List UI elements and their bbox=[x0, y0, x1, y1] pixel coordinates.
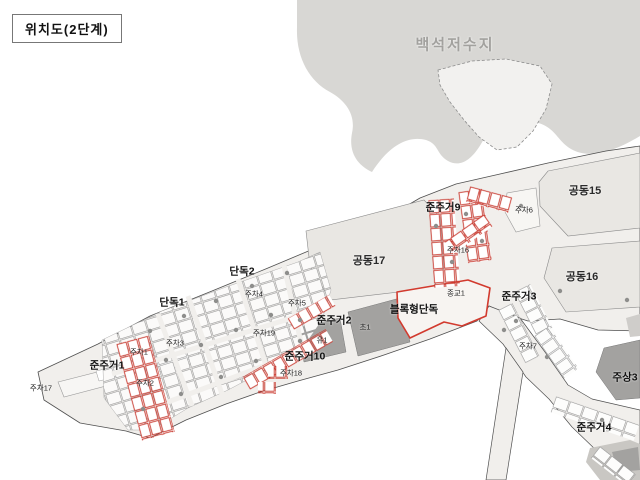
zone-label-jusang3: 주상3 bbox=[612, 370, 637, 385]
south-road-branch bbox=[486, 348, 523, 480]
site-plan-map bbox=[0, 0, 640, 480]
zone-label-cho1: 초1 bbox=[359, 322, 370, 333]
zone-label-dandok1: 단독1 bbox=[159, 295, 184, 310]
zone-label-jucha19: 주차19 bbox=[253, 328, 275, 339]
zone-label-jucha1: 주차1 bbox=[130, 347, 148, 358]
zone-label-jucha6: 주차6 bbox=[515, 205, 533, 216]
zone-label-jucha5: 주차5 bbox=[288, 298, 306, 309]
zone-label-gongdong16: 공동16 bbox=[566, 268, 598, 284]
zone-label-junjugeo2: 준주거2 bbox=[317, 313, 352, 328]
zone-label-gongdong17: 공동17 bbox=[353, 252, 385, 268]
zone-label-jucha4: 주차4 bbox=[245, 289, 263, 300]
zone-label-junjugeo10: 준주거10 bbox=[285, 349, 326, 364]
zone-label-junjugeo3: 준주거3 bbox=[502, 289, 537, 304]
right-edge-parcel bbox=[626, 314, 640, 337]
zone-label-jucha7: 주차7 bbox=[519, 341, 537, 352]
zone-label-jucha3: 주차3 bbox=[166, 338, 184, 349]
zone-label-jonggyo1: 종교1 bbox=[447, 288, 465, 299]
zone-label-jucha17: 주차17 bbox=[30, 383, 52, 394]
zone-jucha18-lots-b bbox=[258, 382, 276, 394]
location-map-page: 위치도(2단계) 백석저수지 공동15 공동16 공동17 준주거9 준주거3 … bbox=[0, 0, 640, 480]
zone-label-block-dandok: 블록형단독 bbox=[390, 302, 438, 317]
zone-label-jucha2: 주차2 bbox=[136, 378, 154, 389]
zone-label-junjugeo1: 준주거1 bbox=[90, 358, 125, 373]
zone-label-dandok2: 단독2 bbox=[229, 264, 254, 279]
zone-label-jucha16: 주차16 bbox=[447, 245, 469, 256]
zone-label-gongdong15: 공동15 bbox=[569, 182, 601, 198]
zone-label-jucha18: 주차18 bbox=[280, 368, 302, 379]
zone-label-yu1: 유1 bbox=[316, 335, 327, 346]
zone-label-junjugeo9: 준주거9 bbox=[426, 200, 461, 215]
reservoir-label: 백석저수지 bbox=[415, 34, 494, 55]
zone-label-junjugeo4: 준주거4 bbox=[577, 420, 612, 435]
page-title: 위치도(2단계) bbox=[12, 14, 122, 43]
